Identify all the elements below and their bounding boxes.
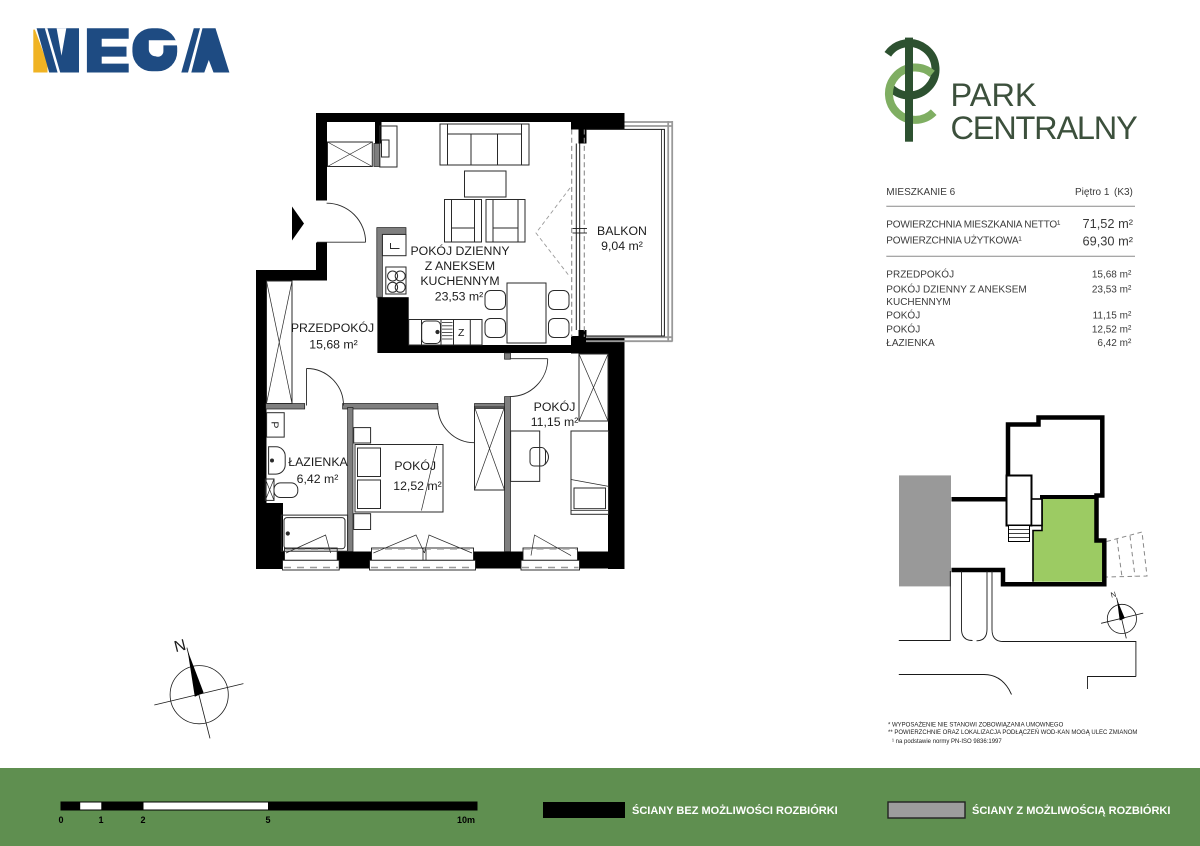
svg-text:1: 1	[98, 815, 103, 825]
svg-text:12,52 m²: 12,52 m²	[1092, 324, 1132, 335]
svg-text:ŁAZIENKA: ŁAZIENKA	[288, 455, 348, 469]
svg-text:ŚCIANY Z MOŻLIWOŚCIĄ ROZBIÓRKI: ŚCIANY Z MOŻLIWOŚCIĄ ROZBIÓRKI	[972, 804, 1170, 817]
svg-text:PRZEDPOKÓJ: PRZEDPOKÓJ	[291, 320, 374, 335]
svg-text:* WYPOSAŻENIE NIE STANOWI ZOB: * WYPOSAŻENIE NIE STANOWI ZOBOWIĄZANIA U…	[888, 721, 1064, 728]
svg-text:2: 2	[140, 815, 145, 825]
svg-text:¹ na podstawie normy PN-ISO 98: ¹ na podstawie normy PN-ISO 9836:1997	[892, 739, 1002, 745]
svg-text:15,68 m²: 15,68 m²	[309, 338, 358, 352]
svg-text:BALKON: BALKON	[597, 224, 647, 238]
svg-text:PRZEDPOKÓJ: PRZEDPOKÓJ	[886, 267, 954, 280]
svg-text:15,68 m²: 15,68 m²	[1092, 269, 1132, 280]
svg-text:71,52 m²: 71,52 m²	[1082, 216, 1133, 231]
svg-text:** POWIERZCHNIE ORAZ LOKALIZAC: ** POWIERZCHNIE ORAZ LOKALIZACJA PODŁĄCZ…	[888, 729, 1137, 736]
svg-text:N: N	[172, 637, 187, 656]
svg-text:0: 0	[58, 815, 63, 825]
svg-text:23,53 m²: 23,53 m²	[435, 290, 484, 304]
svg-text:PARK: PARK	[951, 77, 1037, 113]
svg-text:23,53 m²: 23,53 m²	[1092, 285, 1132, 296]
svg-text:POKÓJ: POKÓJ	[886, 322, 920, 335]
svg-text:POKÓJ: POKÓJ	[534, 399, 576, 414]
svg-text:N: N	[1110, 590, 1117, 600]
svg-text:ŚCIANY BEZ MOŻLIWOŚCI ROZBIÓRK: ŚCIANY BEZ MOŻLIWOŚCI ROZBIÓRKI	[632, 804, 838, 817]
svg-text:POWIERZCHNIA MIESZKANIA NETTO¹: POWIERZCHNIA MIESZKANIA NETTO¹	[886, 219, 1061, 230]
svg-text:Z: Z	[458, 327, 465, 339]
svg-text:POWIERZCHNIA UŻYTKOWA¹: POWIERZCHNIA UŻYTKOWA¹	[886, 234, 1022, 247]
svg-text:69,30 m²: 69,30 m²	[1082, 234, 1133, 249]
svg-text:(K3): (K3)	[1114, 187, 1133, 198]
svg-text:POKÓJ DZIENNY: POKÓJ DZIENNY	[410, 243, 509, 258]
svg-text:6,42 m²: 6,42 m²	[297, 472, 339, 486]
svg-text:POKÓJ DZIENNY Z ANEKSEM: POKÓJ DZIENNY Z ANEKSEM	[886, 283, 1026, 296]
svg-text:KUCHENNYM: KUCHENNYM	[420, 274, 499, 288]
svg-text:Piętro 1: Piętro 1	[1075, 187, 1110, 198]
svg-text:12,52 m²: 12,52 m²	[393, 479, 442, 493]
svg-text:POKÓJ: POKÓJ	[886, 309, 920, 322]
svg-text:11,15 m²: 11,15 m²	[531, 415, 579, 429]
svg-text:11,15 m²: 11,15 m²	[1093, 311, 1132, 322]
svg-text:ŁAZIENKA: ŁAZIENKA	[886, 338, 935, 349]
svg-text:P: P	[269, 421, 281, 428]
svg-text:10m: 10m	[457, 815, 475, 825]
svg-text:6,42 m²: 6,42 m²	[1097, 338, 1132, 349]
svg-text:5: 5	[265, 815, 270, 825]
svg-text:MIESZKANIE 6: MIESZKANIE 6	[886, 187, 955, 198]
svg-text:KUCHENNYM: KUCHENNYM	[886, 297, 950, 308]
svg-text:CENTRALNY: CENTRALNY	[951, 110, 1138, 146]
svg-text:Z ANEKSEM: Z ANEKSEM	[425, 259, 495, 273]
svg-text:POKÓJ: POKÓJ	[394, 458, 436, 473]
svg-text:9,04 m²: 9,04 m²	[601, 239, 643, 253]
